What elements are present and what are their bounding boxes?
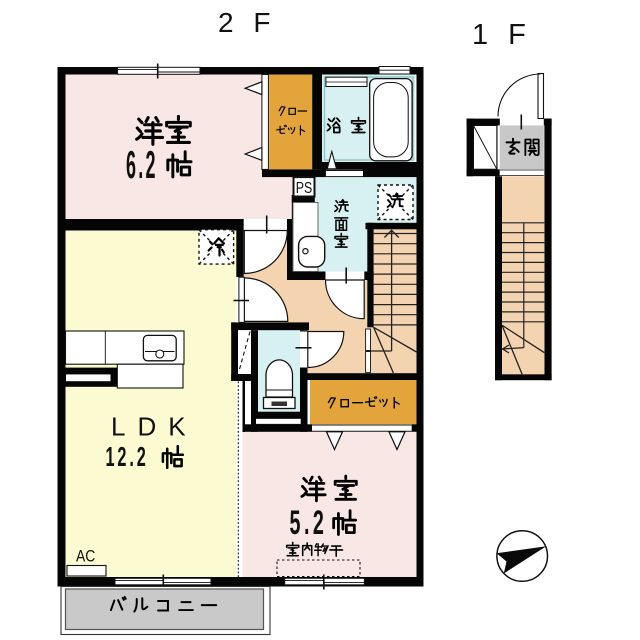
svg-text:5.2: 5.2	[290, 503, 328, 541]
svg-text:PS: PS	[296, 180, 313, 197]
svg-text:2 F: 2 F	[218, 7, 276, 38]
svg-text:6.2: 6.2	[126, 145, 158, 187]
svg-text:12.2: 12.2	[106, 440, 149, 472]
svg-text:LDK: LDK	[111, 411, 198, 441]
svg-text:AC: AC	[76, 547, 95, 566]
svg-text:1 F: 1 F	[472, 19, 532, 51]
